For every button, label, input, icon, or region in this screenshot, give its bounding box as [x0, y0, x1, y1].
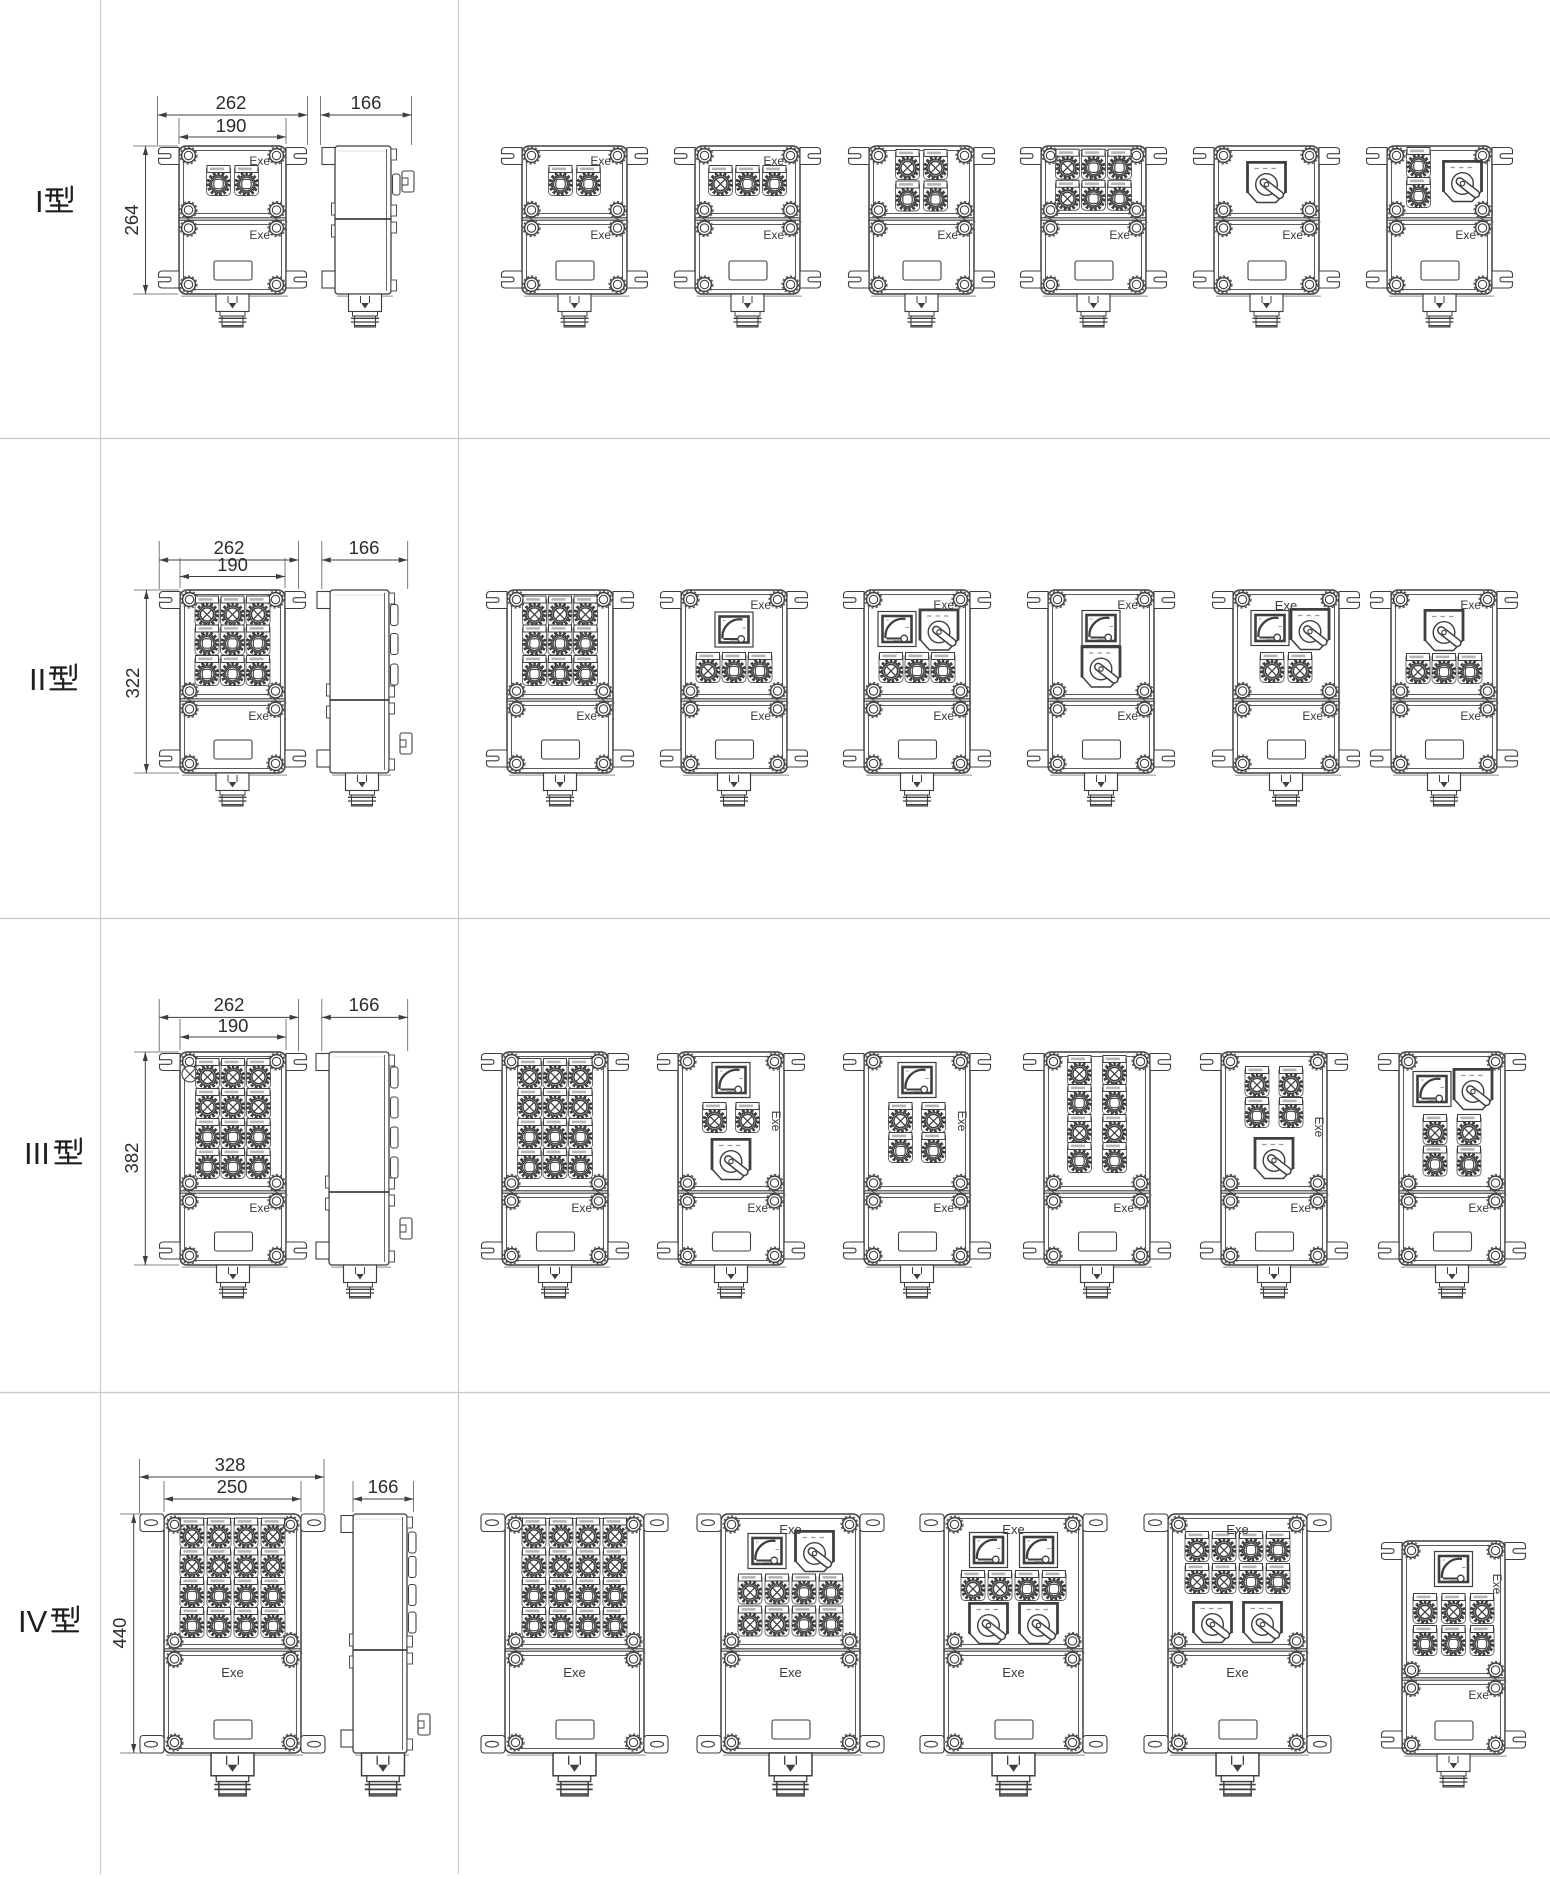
svg-text:Exe: Exe [933, 1201, 954, 1215]
svg-text:Exe: Exe [1460, 709, 1481, 723]
svg-text:328: 328 [215, 1454, 246, 1475]
svg-text:Exe: Exe [1468, 1688, 1489, 1702]
svg-text:322: 322 [122, 668, 143, 699]
svg-text:Exe: Exe [1312, 1117, 1326, 1138]
svg-text:Exe: Exe [563, 1665, 585, 1680]
svg-text:Exe: Exe [1113, 1201, 1134, 1215]
svg-text:III: III [24, 1136, 50, 1171]
svg-text:Exe: Exe [1490, 1574, 1504, 1595]
svg-text:Exe: Exe [955, 1111, 969, 1132]
svg-text:166: 166 [349, 537, 380, 558]
svg-text:Exe: Exe [1468, 1201, 1489, 1215]
svg-text:190: 190 [217, 554, 248, 575]
svg-text:IV: IV [18, 1604, 48, 1639]
svg-text:Exe: Exe [1282, 228, 1303, 242]
svg-text:Exe: Exe [590, 228, 611, 242]
svg-text:Exe: Exe [937, 228, 958, 242]
svg-text:Exe: Exe [750, 598, 771, 612]
svg-text:Exe: Exe [1117, 709, 1138, 723]
svg-text:II: II [29, 662, 46, 697]
svg-text:166: 166 [349, 994, 380, 1015]
svg-text:Exe: Exe [750, 709, 771, 723]
svg-text:Exe: Exe [1226, 1665, 1248, 1680]
svg-text:Exe: Exe [249, 154, 270, 168]
svg-text:Exe: Exe [1109, 228, 1130, 242]
svg-text:382: 382 [121, 1143, 142, 1174]
svg-text:264: 264 [121, 205, 142, 236]
svg-text:190: 190 [218, 1015, 249, 1036]
svg-text:Exe: Exe [249, 228, 270, 242]
svg-text:Exe: Exe [1302, 709, 1323, 723]
svg-text:440: 440 [109, 1618, 130, 1649]
svg-text:Exe: Exe [763, 154, 784, 168]
svg-text:166: 166 [368, 1476, 399, 1497]
svg-text:262: 262 [216, 92, 247, 113]
svg-text:Exe: Exe [779, 1665, 801, 1680]
svg-text:Exe: Exe [249, 1201, 270, 1215]
svg-text:Exe: Exe [1117, 598, 1138, 612]
svg-text:Exe: Exe [769, 1111, 783, 1132]
svg-text:Exe: Exe [1275, 598, 1297, 613]
svg-text:Exe: Exe [1226, 1522, 1248, 1537]
svg-text:Exe: Exe [248, 709, 269, 723]
svg-text:166: 166 [351, 92, 382, 113]
svg-text:Exe: Exe [747, 1201, 768, 1215]
svg-text:Exe: Exe [1002, 1665, 1024, 1680]
svg-text:Exe: Exe [1455, 228, 1476, 242]
svg-text:Exe: Exe [763, 228, 784, 242]
svg-text:Exe: Exe [1460, 598, 1481, 612]
svg-text:262: 262 [214, 994, 245, 1015]
svg-text:Exe: Exe [1002, 1522, 1024, 1537]
svg-text:250: 250 [217, 1476, 248, 1497]
svg-text:Exe: Exe [1290, 1201, 1311, 1215]
svg-text:190: 190 [216, 115, 247, 136]
svg-text:Exe: Exe [933, 709, 954, 723]
svg-text:Exe: Exe [221, 1665, 243, 1680]
svg-text:I: I [35, 184, 44, 219]
svg-text:Exe: Exe [571, 1201, 592, 1215]
svg-text:Exe: Exe [779, 1522, 801, 1537]
svg-text:Exe: Exe [576, 709, 597, 723]
svg-text:Exe: Exe [933, 598, 954, 612]
svg-text:Exe: Exe [590, 154, 611, 168]
